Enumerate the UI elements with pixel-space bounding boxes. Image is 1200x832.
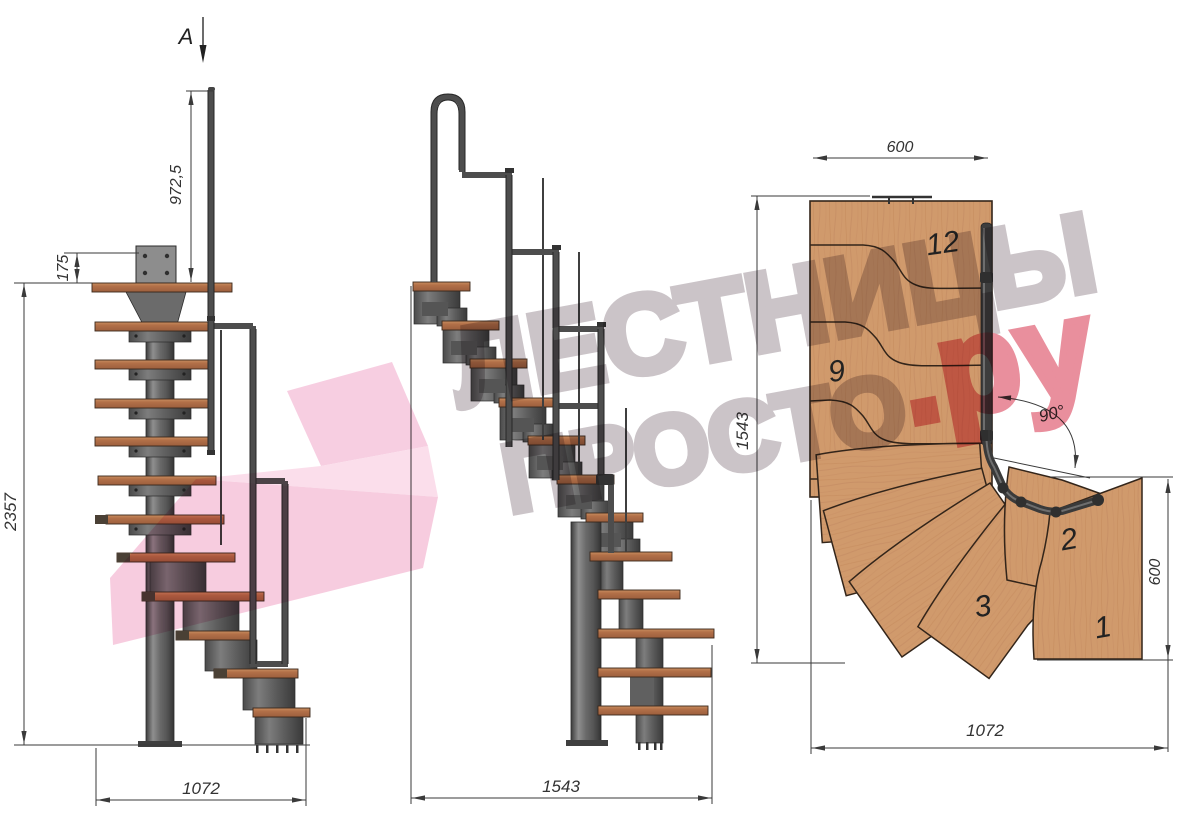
- svg-text:600: 600: [1147, 559, 1164, 586]
- svg-text:1072: 1072: [182, 779, 220, 798]
- svg-text:175: 175: [55, 255, 72, 282]
- svg-text:972,5: 972,5: [168, 165, 185, 205]
- svg-text:1543: 1543: [542, 777, 580, 796]
- svg-text:1072: 1072: [966, 721, 1004, 740]
- svg-text:600: 600: [887, 139, 914, 156]
- svg-text:A: A: [177, 24, 194, 49]
- svg-text:2357: 2357: [1, 493, 20, 532]
